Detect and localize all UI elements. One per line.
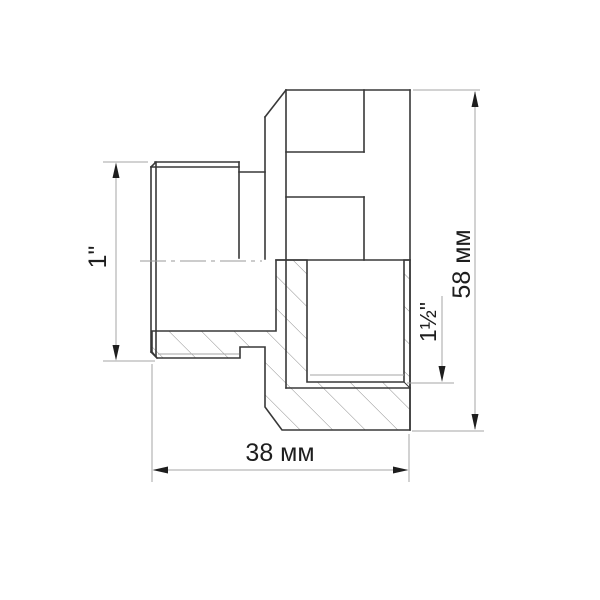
dimension-label-female-thread: 1½"	[415, 302, 441, 342]
fitting-technical-drawing: 1" 1½" 58 мм 38 мм	[0, 0, 600, 600]
dimension-label-overall-height: 58 мм	[448, 229, 476, 298]
dimension-label-male-thread: 1"	[84, 246, 112, 269]
dimension-label-overall-width: 38 мм	[245, 439, 314, 467]
drawing-canvas: 1" 1½" 58 мм 38 мм	[0, 0, 600, 600]
